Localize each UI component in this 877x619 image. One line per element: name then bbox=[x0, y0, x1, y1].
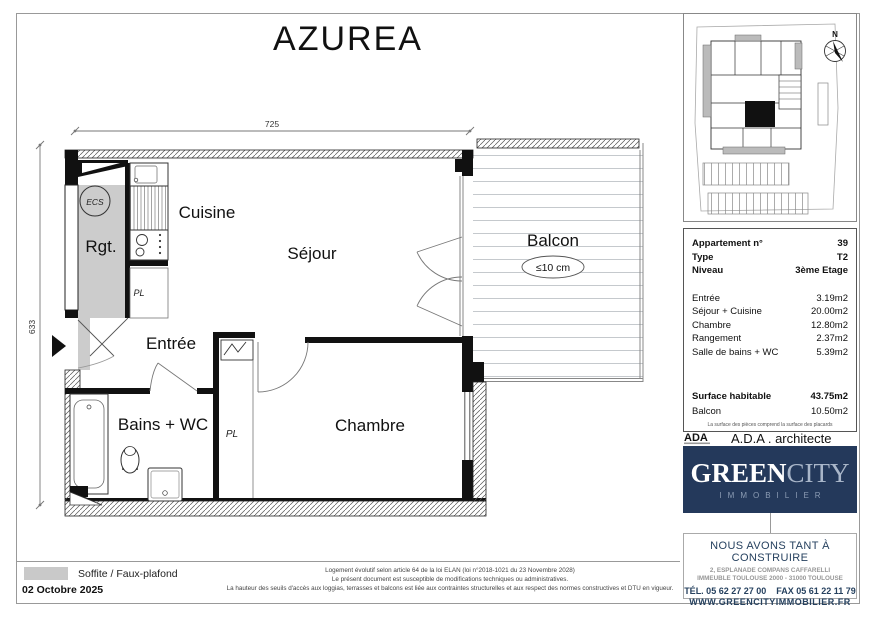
info-row-type: Type T2 bbox=[692, 251, 848, 265]
site-plan-drawing: N bbox=[683, 13, 857, 222]
info-row-area: Rangement 2.37m2 bbox=[692, 332, 848, 346]
info-label: Séjour + Cuisine bbox=[692, 305, 762, 319]
legal-line-1: Logement évolutif selon article 64 de la… bbox=[225, 566, 675, 575]
brand-tagline: NOUS AVONS TANT À CONSTRUIRE bbox=[684, 540, 856, 564]
page-title: AZUREA bbox=[16, 20, 680, 59]
info-label: Balcon bbox=[692, 404, 721, 419]
info-label: Salle de bains + WC bbox=[692, 346, 778, 360]
logo-tick-line bbox=[770, 513, 771, 533]
info-value: 39 bbox=[837, 237, 848, 251]
room-label-cuisine: Cuisine bbox=[179, 203, 236, 222]
closet-label-kitchen: PL bbox=[133, 288, 144, 298]
info-totals: Surface habitable 43.75m2 Balcon 10.50m2… bbox=[692, 389, 848, 428]
brand-phone-fax: TÉL. 05 62 27 27 00 FAX 05 61 22 11 79 bbox=[684, 586, 856, 596]
room-label-sejour: Séjour bbox=[287, 244, 336, 263]
address-line-2: IMMEUBLE TOULOUSE 2000 - 31000 TOULOUSE bbox=[684, 575, 856, 583]
ecs-label: ECS bbox=[86, 197, 104, 207]
footer-separator bbox=[16, 561, 680, 562]
closet-label-chambre: PL bbox=[226, 429, 238, 440]
greencity-wordmark: GREENCITY bbox=[690, 460, 849, 487]
contact-box: NOUS AVONS TANT À CONSTRUIRE 2, ESPLANAD… bbox=[683, 533, 857, 599]
greencity-logo: GREENCITY IMMOBILIER bbox=[683, 446, 857, 513]
entry-arrow-icon bbox=[52, 335, 66, 357]
info-value: 10.50m2 bbox=[811, 404, 848, 419]
info-row-apartment: Appartement n° 39 bbox=[692, 237, 848, 251]
info-value: 3ème Etage bbox=[795, 264, 848, 278]
info-footnote: La surface des pièces comprend la surfac… bbox=[692, 422, 848, 428]
soffite-legend-label: Soffite / Faux-plafond bbox=[78, 568, 178, 580]
info-row-area: Salle de bains + WC 5.39m2 bbox=[692, 346, 848, 360]
info-value: T2 bbox=[837, 251, 848, 265]
site-plan-box: N bbox=[683, 13, 857, 222]
info-label: Niveau bbox=[692, 264, 723, 278]
dim-label-height: 633 bbox=[27, 320, 37, 334]
info-row-area: Séjour + Cuisine 20.00m2 bbox=[692, 305, 848, 319]
info-label: Appartement n° bbox=[692, 237, 763, 251]
floor-plan-page: AZUREA bbox=[0, 0, 877, 619]
info-value: 3.19m2 bbox=[816, 292, 848, 306]
room-label-chambre: Chambre bbox=[335, 416, 405, 435]
room-label-balcon: Balcon bbox=[527, 231, 579, 250]
dim-label-width: 725 bbox=[265, 119, 279, 129]
info-label: Type bbox=[692, 251, 713, 265]
plan-date: 02 Octobre 2025 bbox=[22, 584, 103, 596]
info-row-balcon: Balcon 10.50m2 bbox=[692, 404, 848, 419]
apartment-info-panel: Appartement n° 39 Type T2 Niveau 3ème Et… bbox=[683, 228, 857, 432]
info-value: 20.00m2 bbox=[811, 305, 848, 319]
technical-panel bbox=[221, 340, 253, 498]
brand-subtitle: IMMOBILIER bbox=[713, 491, 826, 500]
address-line-1: 2, ESPLANADE COMPANS CAFFARELLI bbox=[684, 567, 856, 575]
ada-logo-icon: ADA bbox=[683, 431, 713, 446]
brand-website: WWW.GREENCITYIMMOBILIER.FR bbox=[684, 597, 856, 607]
architect-label: A.D.A . architecte bbox=[731, 431, 831, 446]
floor-plan-drawing: 725 633 ECS Cuisine Séjour Rgt. Entrée B… bbox=[16, 100, 680, 562]
legal-line-3: La hauteur des seuils d'accès aux loggia… bbox=[225, 584, 675, 593]
legal-text: Logement évolutif selon article 64 de la… bbox=[225, 566, 675, 593]
architect-row: ADA A.D.A . architecte bbox=[683, 431, 857, 446]
info-value: 2.37m2 bbox=[816, 332, 848, 346]
room-label-bains: Bains + WC bbox=[118, 415, 208, 434]
brand-address: 2, ESPLANADE COMPANS CAFFARELLI IMMEUBLE… bbox=[684, 567, 856, 583]
info-label: Surface habitable bbox=[692, 389, 771, 404]
brand-green: GREEN bbox=[690, 458, 786, 488]
bathroom-fixtures bbox=[70, 394, 182, 505]
room-label-entree: Entrée bbox=[146, 334, 196, 353]
info-row-area: Chambre 12.80m2 bbox=[692, 319, 848, 333]
info-value: 5.39m2 bbox=[816, 346, 848, 360]
info-label: Entrée bbox=[692, 292, 720, 306]
info-value: 12.80m2 bbox=[811, 319, 848, 333]
ada-logo-text: ADA bbox=[684, 432, 708, 444]
room-label-rgt: Rgt. bbox=[85, 237, 116, 256]
soffite-legend-swatch bbox=[24, 567, 68, 580]
legal-line-2: Le présent document est susceptible de m… bbox=[225, 575, 675, 584]
threshold-note: ≤10 cm bbox=[536, 262, 571, 274]
info-value: 43.75m2 bbox=[810, 389, 848, 404]
info-label: Rangement bbox=[692, 332, 741, 346]
north-label: N bbox=[832, 30, 838, 39]
info-row-area: Entrée 3.19m2 bbox=[692, 292, 848, 306]
info-label: Chambre bbox=[692, 319, 731, 333]
info-row-surface-habitable: Surface habitable 43.75m2 bbox=[692, 389, 848, 404]
info-row-level: Niveau 3ème Etage bbox=[692, 264, 848, 278]
brand-city: CITY bbox=[787, 458, 850, 488]
